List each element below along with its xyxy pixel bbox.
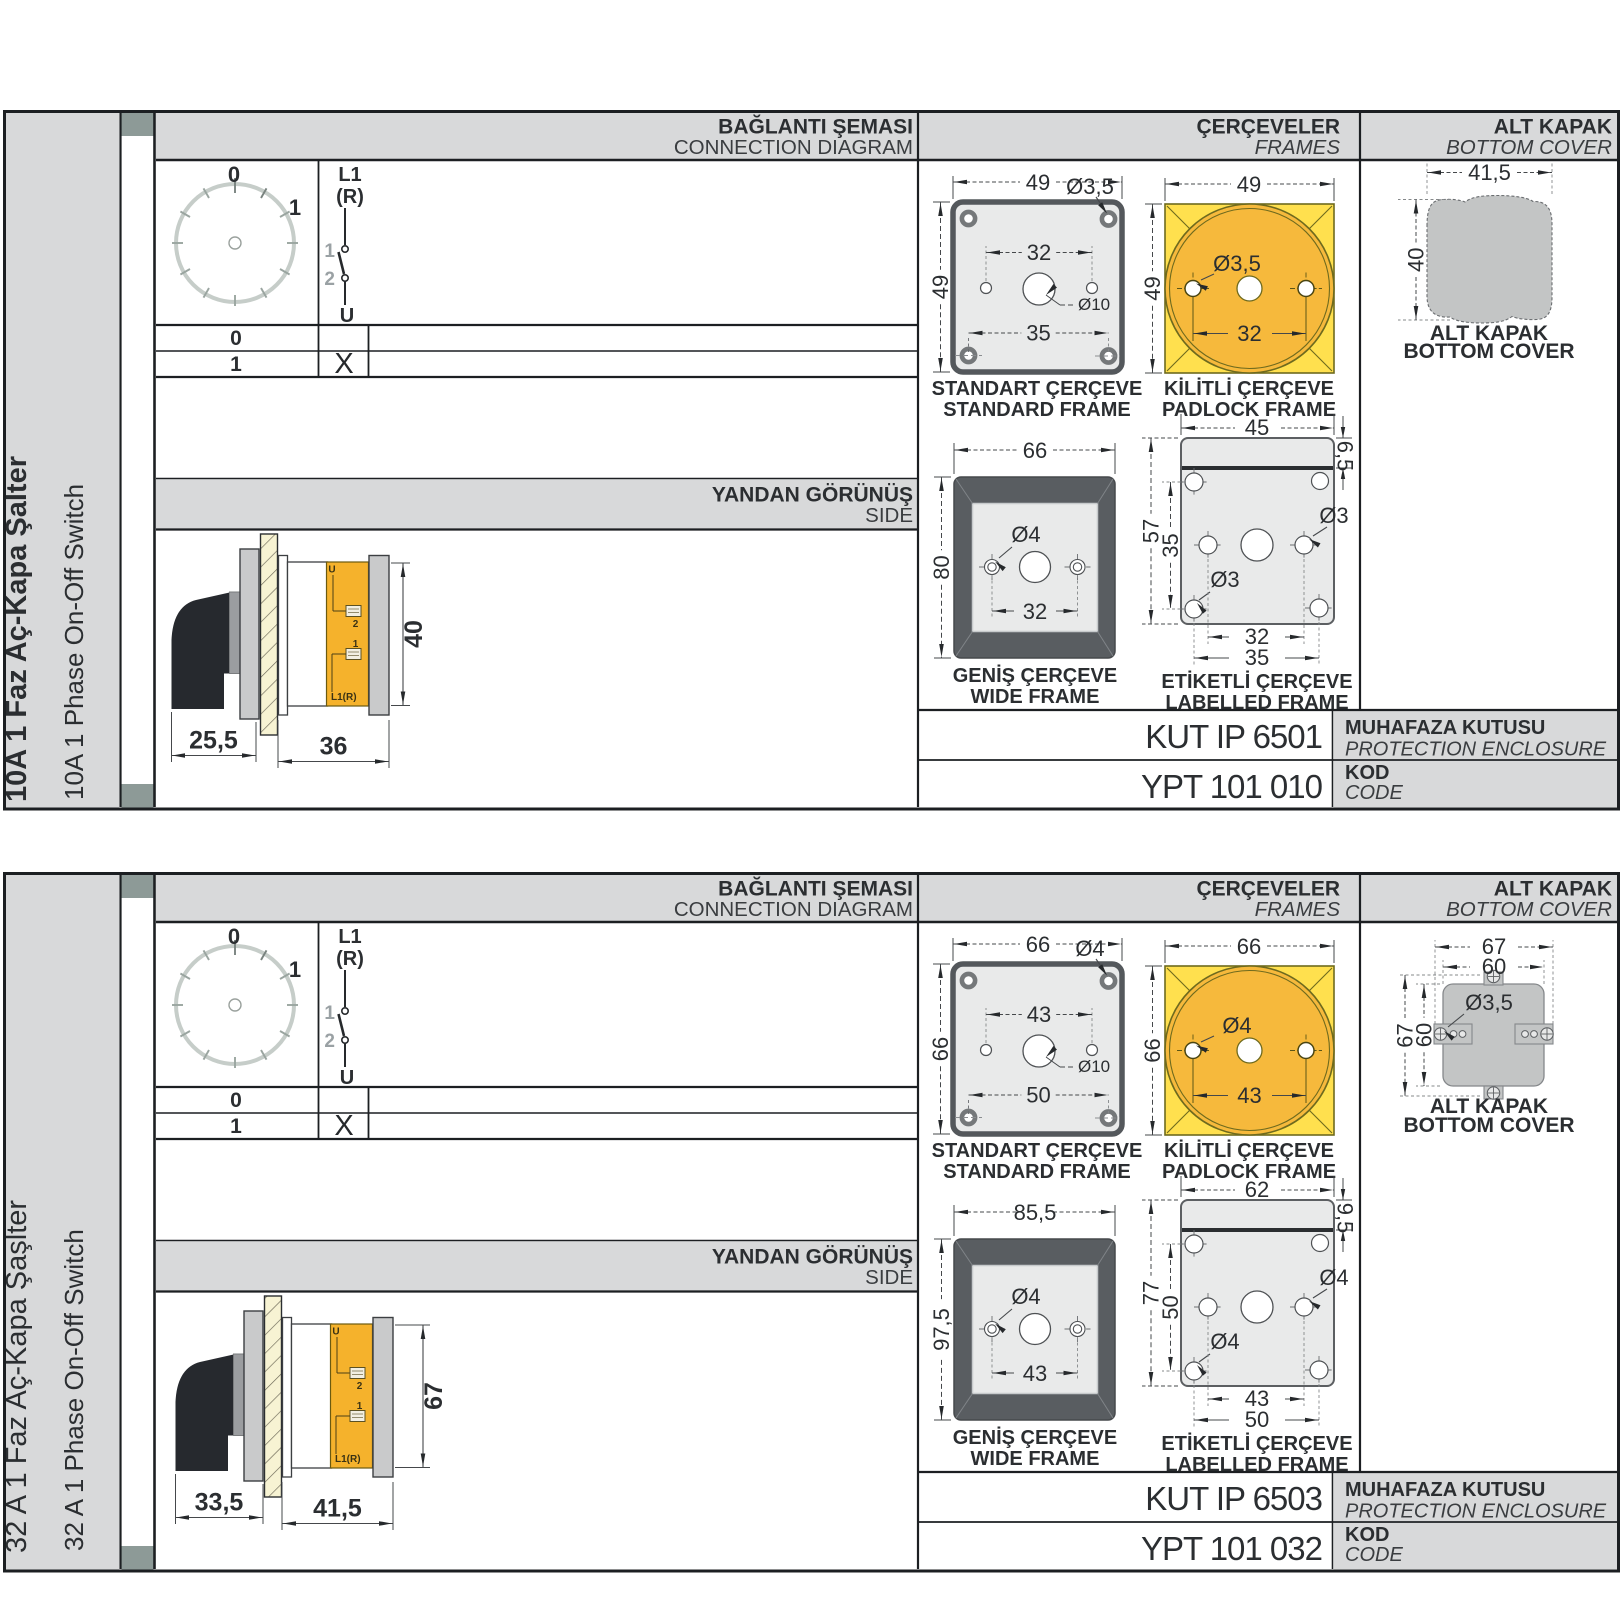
svg-text:SIDE: SIDE — [865, 504, 913, 527]
svg-text:66: 66 — [1026, 932, 1050, 957]
svg-text:U: U — [328, 565, 335, 576]
svg-text:GENİŞ ÇERÇEVE: GENİŞ ÇERÇEVE — [953, 664, 1117, 687]
svg-text:KUT IP 6501: KUT IP 6501 — [1145, 718, 1322, 755]
svg-text:43: 43 — [1237, 1083, 1261, 1108]
svg-text:2: 2 — [357, 1381, 363, 1392]
svg-text:Ø4: Ø4 — [1210, 1329, 1239, 1354]
svg-text:36: 36 — [320, 733, 348, 761]
svg-text:6,5: 6,5 — [1333, 441, 1358, 472]
svg-text:66: 66 — [1237, 934, 1261, 959]
svg-text:43: 43 — [1027, 1002, 1051, 1027]
svg-text:62: 62 — [1245, 1177, 1269, 1202]
svg-text:40: 40 — [400, 620, 428, 648]
svg-text:L1(R): L1(R) — [331, 692, 357, 703]
svg-text:CONNECTION DIAGRAM: CONNECTION DIAGRAM — [674, 898, 913, 921]
svg-text:MUHAFAZA KUTUSU: MUHAFAZA KUTUSU — [1345, 717, 1545, 739]
svg-text:BAĞLANTI ŞEMASI: BAĞLANTI ŞEMASI — [718, 115, 913, 139]
svg-text:49: 49 — [1026, 170, 1050, 195]
svg-text:L1: L1 — [338, 164, 361, 186]
svg-text:L1: L1 — [338, 926, 361, 948]
svg-text:SIDE: SIDE — [865, 1266, 913, 1289]
svg-text:35: 35 — [1026, 320, 1050, 345]
svg-text:Ø4: Ø4 — [1222, 1013, 1251, 1038]
svg-text:STANDARD FRAME: STANDARD FRAME — [943, 1161, 1130, 1183]
svg-text:1: 1 — [230, 1115, 242, 1138]
svg-text:KUT IP 6503: KUT IP 6503 — [1145, 1480, 1322, 1517]
svg-text:35: 35 — [1158, 533, 1183, 557]
svg-text:25,5: 25,5 — [189, 727, 238, 755]
svg-text:0: 0 — [228, 162, 240, 187]
svg-text:CODE: CODE — [1345, 782, 1403, 804]
svg-text:U: U — [340, 1067, 354, 1089]
svg-text:33,5: 33,5 — [195, 1489, 244, 1517]
svg-text:66: 66 — [1140, 1038, 1165, 1062]
svg-text:32: 32 — [1027, 240, 1051, 265]
svg-text:U: U — [340, 305, 354, 327]
svg-text:FRAMES: FRAMES — [1255, 136, 1341, 159]
svg-text:KİLİTLİ ÇERÇEVE: KİLİTLİ ÇERÇEVE — [1164, 1139, 1334, 1162]
svg-text:CODE: CODE — [1345, 1544, 1403, 1566]
svg-text:Ø10: Ø10 — [1078, 1057, 1110, 1076]
svg-text:43: 43 — [1023, 1361, 1047, 1386]
svg-text:0: 0 — [230, 327, 242, 350]
svg-text:BOTTOM COVER: BOTTOM COVER — [1403, 340, 1574, 363]
svg-text:1: 1 — [289, 957, 301, 982]
svg-text:Ø3: Ø3 — [1319, 503, 1348, 528]
svg-text:Ø4: Ø4 — [1011, 1284, 1040, 1309]
svg-text:2: 2 — [324, 1031, 335, 1052]
svg-text:KİLİTLİ ÇERÇEVE: KİLİTLİ ÇERÇEVE — [1164, 377, 1334, 400]
svg-text:1: 1 — [230, 353, 242, 376]
svg-text:35: 35 — [1245, 645, 1269, 670]
svg-text:Ø4: Ø4 — [1011, 522, 1040, 547]
svg-text:PROTECTION ENCLOSURE: PROTECTION ENCLOSURE — [1345, 739, 1607, 761]
svg-text:85,5: 85,5 — [1014, 1200, 1057, 1225]
svg-text:66: 66 — [928, 1037, 953, 1061]
svg-text:KOD: KOD — [1345, 762, 1389, 784]
svg-text:40: 40 — [1403, 248, 1428, 272]
svg-text:(R): (R) — [336, 186, 364, 208]
svg-text:9,5: 9,5 — [1333, 1203, 1358, 1234]
svg-text:(R): (R) — [336, 948, 364, 970]
svg-text:67: 67 — [420, 1382, 448, 1410]
svg-text:50: 50 — [1026, 1082, 1050, 1107]
svg-text:49: 49 — [1140, 276, 1165, 300]
svg-text:GENİŞ ÇERÇEVE: GENİŞ ÇERÇEVE — [953, 1426, 1117, 1449]
svg-text:L1(R): L1(R) — [335, 1454, 361, 1465]
svg-text:STANDART ÇERÇEVE: STANDART ÇERÇEVE — [932, 1140, 1143, 1162]
svg-text:CONNECTION DIAGRAM: CONNECTION DIAGRAM — [674, 136, 913, 159]
svg-text:50: 50 — [1158, 1295, 1183, 1319]
svg-text:Ø3: Ø3 — [1210, 567, 1239, 592]
svg-text:60: 60 — [1411, 1023, 1436, 1047]
svg-text:BAĞLANTI ŞEMASI: BAĞLANTI ŞEMASI — [718, 877, 913, 901]
svg-text:1: 1 — [324, 1003, 335, 1024]
svg-text:FRAMES: FRAMES — [1255, 898, 1341, 921]
svg-text:1: 1 — [289, 195, 301, 220]
svg-text:STANDARD FRAME: STANDARD FRAME — [943, 399, 1130, 421]
svg-text:ETİKETLİ ÇERÇEVE: ETİKETLİ ÇERÇEVE — [1161, 1432, 1352, 1455]
svg-text:Ø10: Ø10 — [1078, 295, 1110, 314]
svg-text:YPT 101 010: YPT 101 010 — [1141, 768, 1323, 805]
svg-text:ETİKETLİ ÇERÇEVE: ETİKETLİ ÇERÇEVE — [1161, 670, 1352, 693]
svg-text:41,5: 41,5 — [313, 1495, 362, 1523]
svg-text:32: 32 — [1023, 599, 1047, 624]
svg-text:Ø3,5: Ø3,5 — [1066, 174, 1114, 199]
svg-text:49: 49 — [928, 275, 953, 299]
svg-text:97,5: 97,5 — [929, 1308, 954, 1351]
svg-text:YPT 101 032: YPT 101 032 — [1141, 1530, 1322, 1567]
svg-text:32: 32 — [1237, 321, 1261, 346]
svg-text:49: 49 — [1237, 172, 1261, 197]
svg-text:1: 1 — [324, 241, 335, 262]
svg-text:Ø4: Ø4 — [1075, 936, 1104, 961]
svg-text:PROTECTION ENCLOSURE: PROTECTION ENCLOSURE — [1345, 1501, 1607, 1523]
svg-text:MUHAFAZA KUTUSU: MUHAFAZA KUTUSU — [1345, 1479, 1545, 1501]
svg-text:Ø4: Ø4 — [1319, 1265, 1348, 1290]
svg-text:0: 0 — [230, 1089, 242, 1112]
svg-text:U: U — [332, 1327, 339, 1338]
svg-text:45: 45 — [1245, 415, 1269, 440]
svg-text:66: 66 — [1023, 438, 1047, 463]
svg-text:50: 50 — [1245, 1407, 1269, 1432]
svg-text:BOTTOM COVER: BOTTOM COVER — [1403, 1114, 1574, 1137]
svg-text:32 A 1 Phase On-Off Switch: 32 A 1 Phase On-Off Switch — [59, 1229, 89, 1551]
svg-text:BOTTOM COVER: BOTTOM COVER — [1446, 898, 1612, 921]
svg-text:BOTTOM COVER: BOTTOM COVER — [1446, 136, 1612, 159]
svg-text:Ø3,5: Ø3,5 — [1213, 251, 1261, 276]
svg-text:STANDART ÇERÇEVE: STANDART ÇERÇEVE — [932, 378, 1143, 400]
svg-text:60: 60 — [1482, 954, 1506, 979]
svg-text:WIDE FRAME: WIDE FRAME — [971, 686, 1100, 708]
svg-text:Ø3,5: Ø3,5 — [1465, 990, 1513, 1015]
svg-text:2: 2 — [353, 619, 359, 630]
svg-text:X: X — [334, 1110, 353, 1142]
svg-text:WIDE FRAME: WIDE FRAME — [971, 1448, 1100, 1470]
svg-text:41,5: 41,5 — [1468, 160, 1511, 185]
svg-text:80: 80 — [929, 555, 954, 579]
svg-text:10A 1 Phase On-Off Switch: 10A 1 Phase On-Off Switch — [59, 484, 89, 800]
svg-text:2: 2 — [324, 269, 335, 290]
svg-text:X: X — [334, 348, 353, 380]
svg-text:0: 0 — [228, 924, 240, 949]
svg-text:KOD: KOD — [1345, 1524, 1389, 1546]
